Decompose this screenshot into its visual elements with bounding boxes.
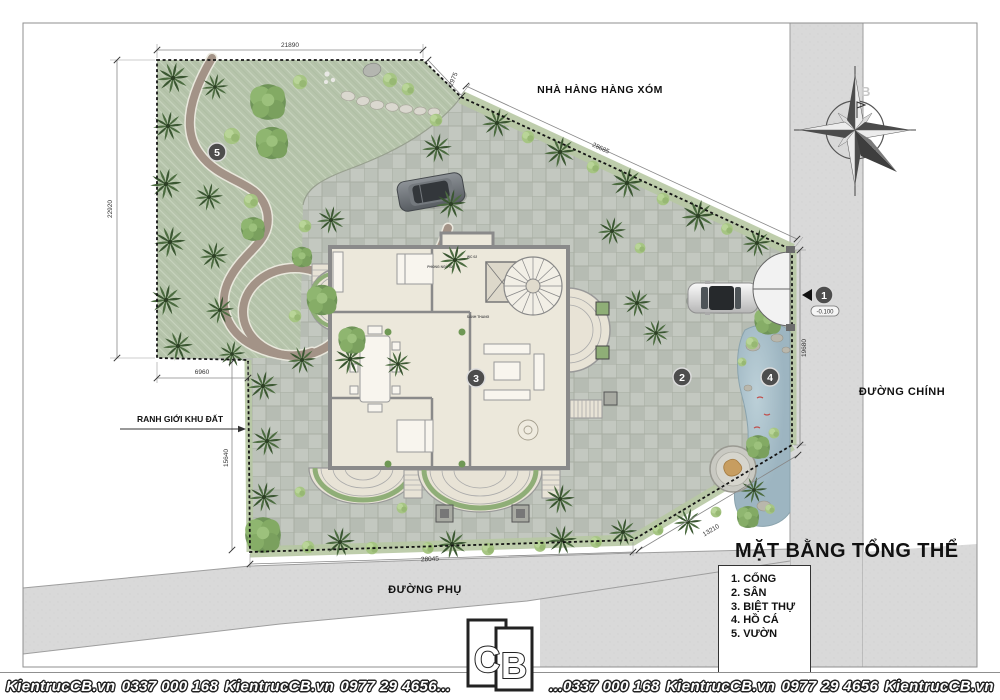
- svg-text:5: 5: [214, 147, 220, 159]
- dim-south: 28045: [421, 556, 440, 564]
- dim-top: 21890: [281, 42, 299, 49]
- footer-phone-1: 0337 000 168: [122, 678, 219, 695]
- legend-item-yard: 2. SÂN: [731, 587, 808, 601]
- dim-east: 19680: [801, 339, 808, 357]
- site-plan-canvas: PHÒNG NGỦ 02 WC 02 SẢNH THANG: [0, 0, 1000, 700]
- dim-west-step: 6960: [195, 369, 210, 376]
- svg-text:1: 1: [821, 290, 827, 302]
- side-road: [23, 549, 790, 667]
- gate-level-tag: -0.100: [816, 310, 834, 316]
- svg-text:4: 4: [767, 372, 773, 384]
- north-label: B: [861, 84, 870, 99]
- badge-fish-pond: 4: [761, 368, 779, 386]
- footer-website-2: KientrucCB.vn: [225, 678, 334, 695]
- legend-item-garden: 5. VƯỜN: [731, 628, 808, 642]
- footer-website-3: KientrucCB.vn: [666, 678, 775, 695]
- badge-gate: 1: [815, 286, 833, 304]
- legend-box: 1. CỔNG 2. SÂN 3. BIỆT THỰ 4. HỒ CÁ 5. V…: [718, 565, 811, 677]
- badge-garden: 5: [208, 143, 226, 161]
- boundary-label: RANH GIỚI KHU ĐẤT: [137, 413, 224, 424]
- footer-website-4: KientrucCB.vn: [885, 678, 994, 695]
- logo-letter-b: B: [501, 645, 527, 686]
- main-road-label: ĐƯỜNG CHÍNH: [859, 385, 945, 398]
- svg-text:3: 3: [473, 373, 479, 385]
- sedan-car: [686, 281, 760, 315]
- badge-villa: 3: [467, 369, 485, 387]
- legend-item-fish-pond: 4. HỒ CÁ: [731, 614, 808, 628]
- neighbor-label: NHÀ HÀNG HÀNG XÓM: [537, 83, 663, 96]
- svg-text:2: 2: [679, 372, 685, 384]
- dim-west: 22920: [107, 200, 114, 218]
- side-road-label: ĐƯỜNG PHỤ: [388, 583, 462, 596]
- main-road: [790, 23, 977, 667]
- footer-website-1: KientrucCB.vn: [6, 678, 115, 695]
- dim-southeast: 13210: [702, 523, 721, 539]
- dim-west-lower: 15640: [223, 449, 230, 467]
- footer-phone-2: 0977 29 4656...: [340, 678, 450, 695]
- legend-item-gate: 1. CỔNG: [731, 573, 808, 587]
- footer-phone-3: ...0337 000 168: [549, 678, 659, 695]
- badge-yard: 2: [673, 368, 691, 386]
- dim-top-corner: 2975: [448, 71, 460, 87]
- footer-phone-4: 0977 29 4656: [782, 678, 879, 695]
- logo-letter-c: C: [474, 639, 500, 680]
- drawing-title: MẶT BẰNG TỔNG THỂ: [735, 540, 958, 563]
- site-plan-page: PHÒNG NGỦ 02 WC 02 SẢNH THANG: [0, 0, 1000, 700]
- room-label-stair-hall: SẢNH THANG: [467, 314, 490, 319]
- legend-item-villa: 3. BIỆT THỰ: [731, 601, 808, 615]
